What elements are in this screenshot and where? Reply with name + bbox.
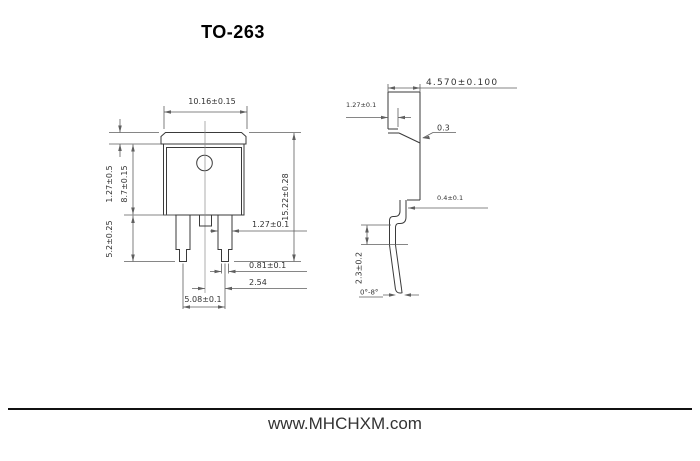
dim-lead-width: 1.27±0.1	[210, 220, 307, 233]
dim-lead-tip-width-label: 0.81±0.1	[249, 261, 286, 270]
dim-tab-thickness: 1.27±0.1	[346, 101, 411, 127]
dim-lead-angle-label: 0°-8°	[360, 289, 378, 297]
dim-tab-step-label: 0.3	[437, 124, 450, 133]
front-view	[161, 121, 246, 293]
dim-body-width: 10.16±0.15	[164, 97, 247, 129]
side-lead-foot	[396, 289, 403, 294]
dim-lead-thickness-label: 0.4±0.1	[437, 194, 463, 202]
dim-tab-step: 0.3	[422, 124, 456, 140]
dim-lead-span: 5.08±0.1	[183, 264, 225, 310]
lead-left	[176, 215, 190, 262]
technical-drawing: 10.16±0.15 1.27±0.5 8.7±0.15 5.2±0.25 15…	[0, 0, 700, 461]
dim-overall-height-label: 15.22±0.28	[281, 173, 290, 220]
side-view	[388, 92, 420, 293]
side-body	[388, 92, 420, 200]
footer-rule	[8, 408, 692, 410]
lead-center-stub	[200, 215, 212, 226]
dim-overall-depth-label: 4.570±0.100	[426, 78, 498, 88]
front-tab	[161, 133, 246, 145]
dim-body-height-label: 8.7±0.15	[120, 165, 129, 202]
dim-lead-length-label: 5.2±0.25	[105, 220, 114, 257]
dim-tab-height-label: 1.27±0.5	[105, 165, 114, 202]
dim-lead-width-label: 1.27±0.1	[252, 220, 289, 229]
dim-tab-thickness-label: 1.27±0.1	[346, 101, 376, 109]
dim-lead-height-label: 2.3±0.2	[355, 252, 364, 284]
dim-lead-tip-width: 0.81±0.1	[210, 261, 307, 274]
dim-lead-span-label: 5.08±0.1	[184, 295, 221, 304]
mounting-hole	[197, 155, 213, 171]
dim-body-width-label: 10.16±0.15	[188, 97, 235, 106]
footer-website: www.MHCHXM.com	[0, 414, 690, 434]
lead-right	[218, 215, 232, 262]
dim-overall-depth: 4.570±0.100	[388, 78, 517, 92]
front-body-inner	[167, 148, 242, 216]
dim-lead-pitch-label: 2.54	[249, 278, 267, 287]
dim-lead-length: 5.2±0.25	[105, 216, 175, 262]
front-body	[164, 144, 245, 215]
dim-lead-angle: 0°-8°	[359, 289, 419, 298]
